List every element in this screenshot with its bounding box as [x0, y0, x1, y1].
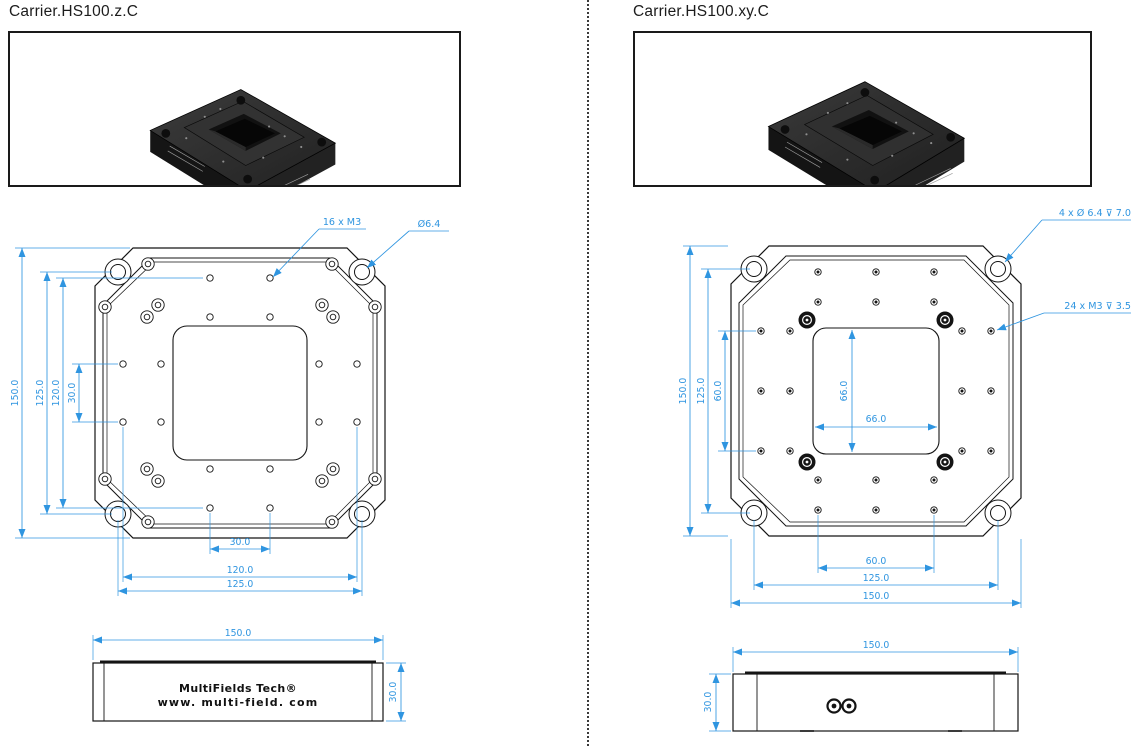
dim-30-right: 30.0 [386, 663, 406, 721]
m3-holes [758, 269, 994, 513]
clamp-screws [99, 258, 381, 528]
callout-24xM3: 24 x M3 ⊽ 3.5 [997, 301, 1131, 330]
dim-label: 125.0 [863, 573, 890, 584]
url-text: www. multi-field. com [158, 696, 319, 709]
outer-profile [731, 246, 1021, 536]
dim-label: 60.0 [866, 556, 887, 567]
product-isometric-render: CE [150, 90, 335, 185]
dim-125-bottom: 125.0 [754, 520, 998, 590]
dim-30-vertical: 30.0 [67, 364, 118, 422]
dim-label: 125.0 [696, 378, 707, 405]
callout-dia6-4: Ø6.4 [367, 218, 449, 268]
right-side-view: 150.0 30.0 [685, 625, 1137, 746]
dim-30-left: 30.0 [703, 674, 731, 731]
left-product-photo-box: CE [8, 31, 461, 187]
corner-holes [105, 259, 375, 527]
side-body [733, 673, 1018, 731]
left-plan-outline [95, 248, 385, 538]
dim-label: 66.0 [866, 414, 887, 425]
right-product-photo: CE [635, 33, 1090, 185]
dim-label: 60.0 [713, 381, 724, 402]
dim-label: 66.0 [839, 381, 850, 402]
center-aperture [813, 328, 939, 454]
dim-label: 120.0 [51, 380, 62, 407]
side-body: MultiFields Tech® www. multi-field. com [93, 662, 383, 721]
hex-screws [799, 312, 953, 470]
dim-label: 120.0 [227, 565, 254, 576]
dim-60-bottom: 60.0 [818, 515, 934, 573]
dim-150-top: 150.0 [93, 628, 383, 660]
dim-30-bottom: 30.0 [210, 513, 270, 554]
dim-125-bottom: 125.0 [118, 520, 362, 596]
dim-label: 150.0 [863, 640, 890, 651]
dim-120-bottom: 120.0 [123, 427, 357, 582]
dim-label: 150.0 [863, 591, 890, 602]
octagon-plate-outer [739, 256, 1013, 526]
panel-hs100-xy: Carrier.HS100.xy.C [589, 0, 1137, 746]
dim-label: 30.0 [388, 682, 399, 703]
corner-counterbores [741, 256, 1011, 526]
right-plan-drawing: 150.0 125.0 60.0 66.0 66.0 60.0 [600, 195, 1137, 620]
side-connectors [828, 700, 856, 713]
octagon-plate-inner [107, 262, 373, 524]
left-side-view: 150.0 MultiFields Tech® www. multi-field… [55, 625, 430, 746]
dim-label: 150.0 [10, 380, 21, 407]
outer-profile [95, 248, 385, 538]
dim-label: 30.0 [230, 537, 251, 548]
page-title: Carrier.HS100.z.C [9, 3, 138, 21]
dim-label: 125.0 [227, 579, 254, 590]
dim-label: 30.0 [703, 692, 714, 713]
dim-label: 150.0 [225, 628, 252, 639]
callout-counterbore: 4 x Ø 6.4 ⊽ 7.0 [1005, 207, 1131, 262]
callout-label: Ø6.4 [418, 218, 441, 230]
callout-label: 16 x M3 [323, 217, 361, 228]
page-title: Carrier.HS100.xy.C [633, 3, 769, 21]
product-isometric-render: CE [768, 82, 964, 185]
dim-label: 150.0 [678, 378, 689, 405]
left-plan-drawing: 150.0 125.0 120.0 30.0 30.0 120.0 [0, 215, 470, 615]
dim-150-top: 150.0 [733, 640, 1018, 672]
callout-label: 4 x Ø 6.4 ⊽ 7.0 [1059, 207, 1131, 219]
octagon-plate-outer [103, 258, 377, 528]
dim-60-vertical: 60.0 [713, 331, 756, 451]
right-plan-outline [731, 246, 1021, 536]
callout-label: 24 x M3 ⊽ 3.5 [1064, 301, 1131, 312]
center-aperture [173, 326, 307, 460]
dim-label: 30.0 [67, 383, 78, 404]
dim-66-horizontal: 66.0 [815, 414, 937, 427]
dim-label: 125.0 [35, 380, 46, 407]
brand-text: MultiFields Tech® [179, 682, 297, 695]
dim-66-vertical: 66.0 [839, 330, 852, 452]
right-product-photo-box: CE [633, 31, 1092, 187]
left-product-photo: CE [10, 33, 459, 185]
panel-hs100-z: Carrier.HS100.z.C [0, 0, 588, 746]
